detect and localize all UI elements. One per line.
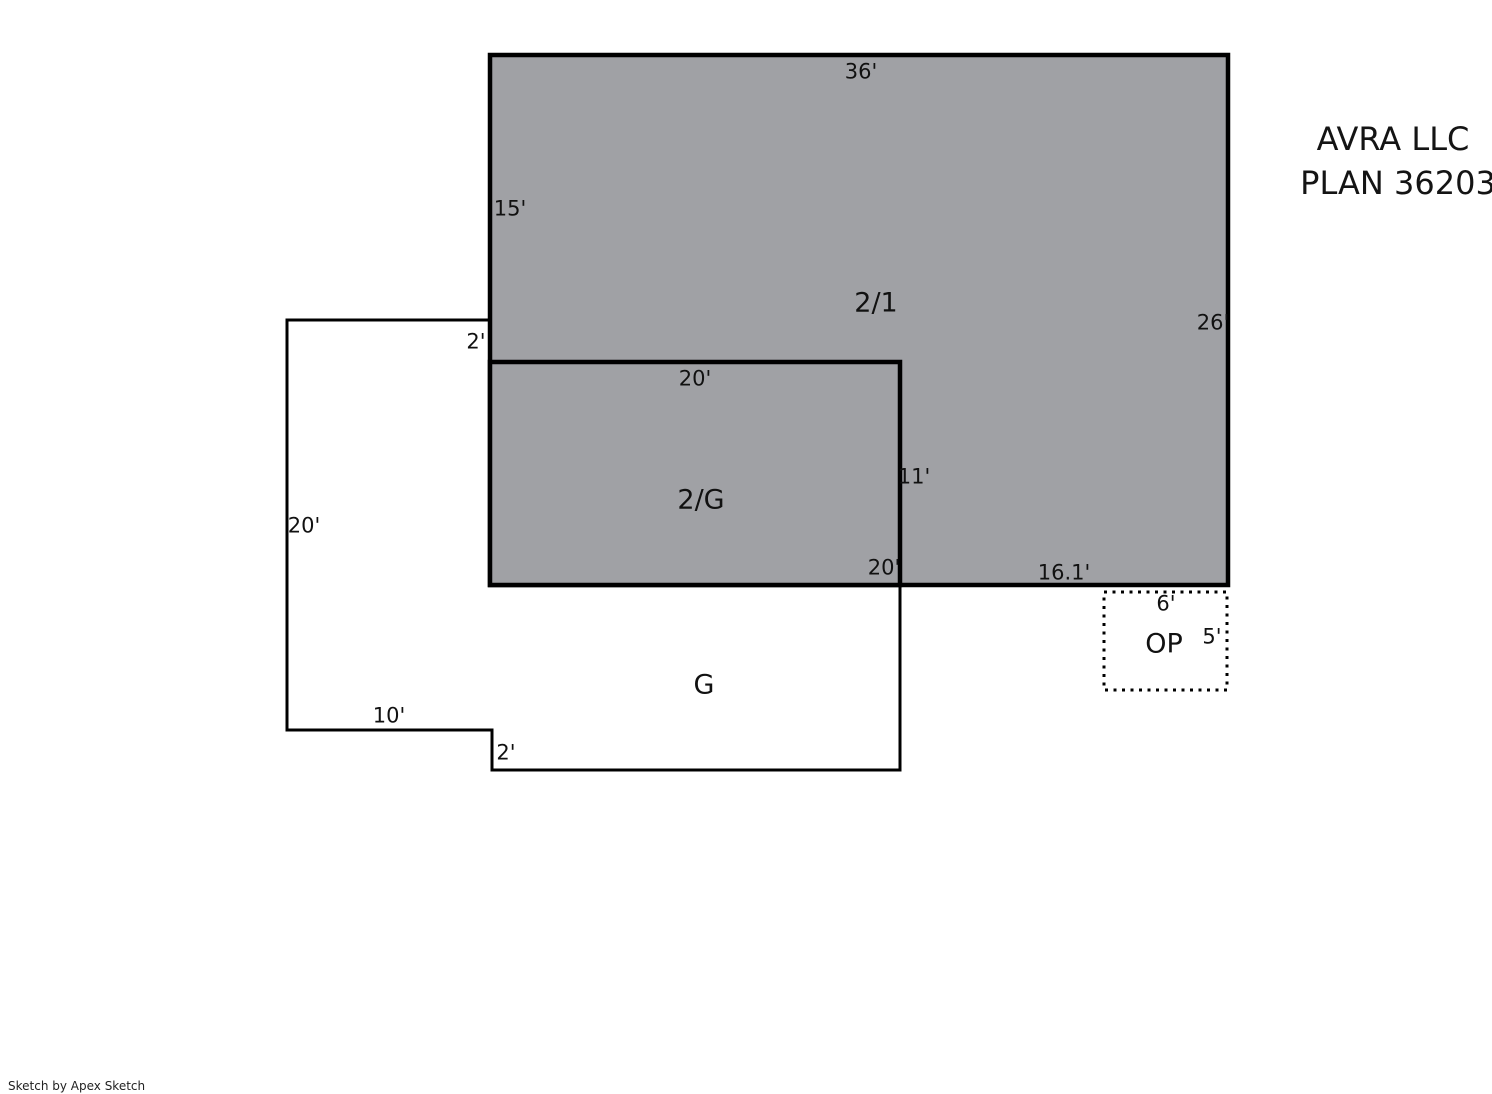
area-label-g: G (694, 672, 715, 699)
floorplan-canvas: 36' 15' 26' 2' 20' 20' 11' 20' 16.1' 6' … (0, 0, 1492, 1094)
dim-label-top-36: 36' (845, 62, 878, 83)
dim-label-g-left-20: 20' (288, 516, 321, 537)
dim-label-upper-2: 2' (466, 332, 485, 353)
dim-label-lower-2: 2' (496, 743, 515, 764)
dim-label-g-bottom-10: 10' (373, 706, 406, 727)
dim-label-2g-bottom-20: 20' (868, 558, 901, 579)
dim-label-bottom-16-1: 16.1' (1038, 563, 1091, 584)
floorplan-drawing (0, 0, 1492, 1094)
dim-label-op-right-5: 5' (1202, 627, 1221, 648)
two-over-garage-area-shape (490, 362, 900, 585)
area-label-2-1: 2/1 (854, 290, 897, 317)
area-label-2-g: 2/G (677, 487, 724, 514)
dim-label-left-15: 15' (494, 199, 527, 220)
dim-label-2g-right-11: 11' (898, 467, 931, 488)
dim-label-right-26: 26' (1197, 313, 1230, 334)
area-label-op: OP (1145, 631, 1183, 658)
plan-title-number: PLAN 36203 (1300, 167, 1492, 199)
sketch-credit: Sketch by Apex Sketch (8, 1079, 145, 1093)
plan-title-owner: AVRA LLC (1317, 123, 1470, 155)
dim-label-2g-top-20: 20' (679, 369, 712, 390)
dim-label-op-top-6: 6' (1156, 594, 1175, 615)
